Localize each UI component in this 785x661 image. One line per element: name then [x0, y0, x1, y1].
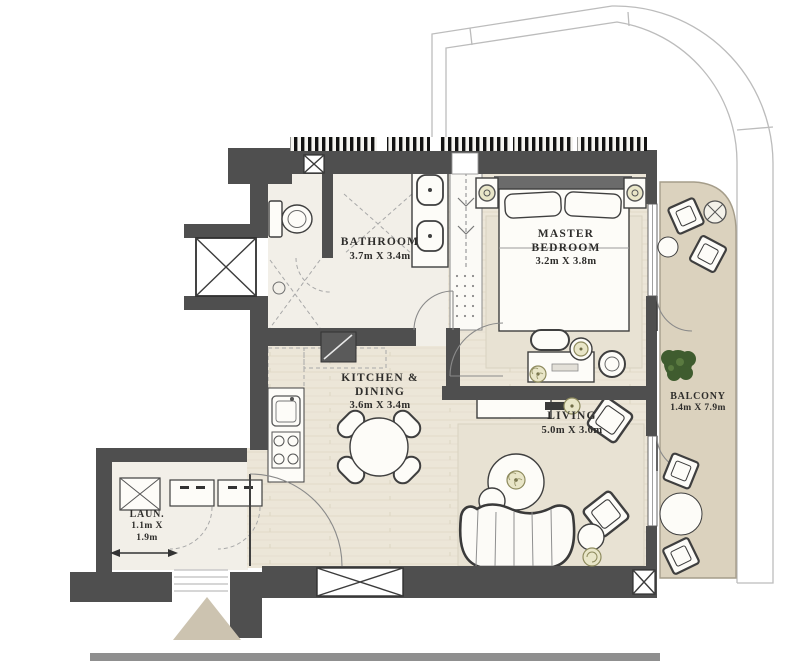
room-label-laundry: LAUN. 1.1m X 1.9m [130, 509, 165, 545]
tv-icon [545, 402, 565, 410]
flower-icon [530, 366, 546, 382]
room-name: BALCONY [670, 391, 726, 403]
wall-opening [452, 153, 478, 174]
room-label-kitchen-dining: KITCHEN & DINING 3.6m X 3.4m [341, 372, 419, 412]
room-dims: 1.4m X 7.9m [670, 403, 726, 415]
room-label-living: LIVING 5.0m X 3.6m [542, 410, 603, 437]
kitchen-counter [268, 388, 304, 482]
sofa [460, 505, 574, 568]
duct-box [304, 155, 324, 173]
room-label-master-bedroom: MASTER BEDROOM 3.2m X 3.8m [531, 228, 600, 268]
room-name: LAUN. [130, 509, 165, 521]
top-wall-hatch [290, 137, 647, 151]
room-label-balcony: BALCONY 1.4m X 7.9m [670, 391, 726, 415]
room-name: LIVING [542, 410, 603, 424]
elevator-shaft [196, 238, 256, 296]
room-dims: 5.0m X 3.6m [542, 424, 603, 437]
flower-icon [574, 342, 588, 356]
room-dims: 3.2m X 3.8m [531, 255, 600, 268]
room-dims: 1.9m [130, 533, 165, 545]
fridge [321, 332, 356, 362]
room-dims: 3.7m X 3.4m [341, 250, 419, 263]
stool [599, 351, 625, 377]
flower-icon [583, 548, 601, 566]
flower-icon [507, 471, 525, 489]
washing-machine-icon [120, 478, 160, 510]
room-name: DINING [341, 386, 419, 400]
duct-box-bottom [317, 568, 403, 596]
floor-plan-graphics [0, 0, 785, 661]
pillow [564, 192, 621, 219]
nightstand [476, 178, 498, 208]
pillow [504, 192, 561, 219]
room-label-bathroom: BATHROOM 3.7m X 3.4m [341, 236, 419, 263]
floor-plan: BATHROOM 3.7m X 3.4m MASTER BEDROOM 3.2m… [0, 0, 785, 661]
duct-box-corner [633, 570, 655, 594]
room-name: MASTER [531, 228, 600, 242]
bottom-bar [90, 653, 660, 661]
desk-chair [531, 330, 569, 350]
dining-table [350, 418, 408, 476]
balcony-table [660, 493, 702, 535]
side-table [578, 524, 604, 550]
room-name: BATHROOM [341, 236, 419, 250]
room-dims: 3.6m X 3.4m [341, 399, 419, 412]
entrance-steps [174, 570, 228, 591]
room-name: KITCHEN & [341, 372, 419, 386]
room-dims: 1.1m X [130, 521, 165, 533]
nightstand [624, 178, 646, 208]
room-name: BEDROOM [531, 242, 600, 256]
balcony-side-table [658, 237, 678, 257]
